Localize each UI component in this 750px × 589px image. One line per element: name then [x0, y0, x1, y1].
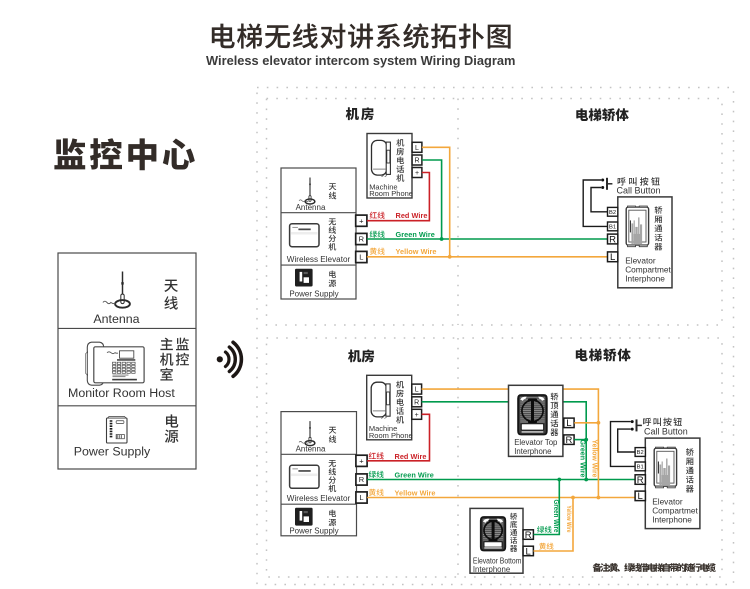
- svg-text:Interphone: Interphone: [473, 565, 510, 574]
- svg-text:L: L: [359, 493, 363, 502]
- svg-text:Call Button: Call Button: [644, 427, 688, 437]
- svg-text:Green Wire: Green Wire: [396, 230, 435, 239]
- svg-text:+: +: [415, 170, 419, 177]
- svg-text:L: L: [638, 491, 643, 502]
- svg-text:Call Button: Call Button: [617, 186, 661, 196]
- svg-text:Red Wire: Red Wire: [395, 452, 427, 461]
- svg-text:R: R: [359, 475, 365, 484]
- svg-text:R: R: [414, 399, 419, 406]
- svg-text:Power Supply: Power Supply: [289, 290, 338, 299]
- svg-text:Wireless Elevator: Wireless Elevator: [287, 255, 351, 264]
- svg-text:B1: B1: [609, 225, 616, 231]
- svg-text:B2: B2: [609, 210, 616, 216]
- svg-text:R: R: [637, 475, 644, 486]
- svg-text:Room Phone: Room Phone: [369, 189, 413, 198]
- svg-text:L: L: [359, 253, 363, 262]
- svg-text:R: R: [565, 435, 572, 446]
- svg-text:Yellow Wire: Yellow Wire: [396, 247, 437, 256]
- svg-text:Wireless Elevator: Wireless Elevator: [287, 494, 351, 503]
- svg-text:Interphone: Interphone: [514, 447, 551, 456]
- svg-text:Monitor Room Host: Monitor Room Host: [68, 386, 175, 400]
- svg-text:Green Wire: Green Wire: [552, 500, 559, 533]
- svg-text:R: R: [525, 530, 532, 541]
- svg-text:Room Phone: Room Phone: [369, 431, 413, 440]
- svg-text:Interphone: Interphone: [652, 515, 692, 525]
- svg-text:Yellow Wire: Yellow Wire: [591, 440, 598, 478]
- svg-text:+: +: [359, 457, 364, 466]
- svg-text:R: R: [414, 158, 419, 165]
- svg-text:Yellow Wire: Yellow Wire: [565, 506, 572, 533]
- svg-text:Antenna: Antenna: [296, 445, 326, 454]
- svg-text:L: L: [610, 252, 615, 263]
- svg-text:L: L: [526, 546, 531, 557]
- svg-text:R: R: [609, 234, 616, 245]
- svg-text:Red Wire: Red Wire: [396, 211, 428, 220]
- svg-text:Antenna: Antenna: [93, 312, 139, 326]
- svg-text:L: L: [415, 387, 419, 394]
- svg-text:B1: B1: [637, 465, 644, 471]
- svg-text:Power Supply: Power Supply: [289, 526, 338, 535]
- svg-text:Power Supply: Power Supply: [74, 444, 151, 458]
- svg-text:R: R: [359, 235, 365, 244]
- svg-text:+: +: [359, 216, 364, 225]
- svg-text:+: +: [415, 412, 419, 419]
- svg-text:L: L: [415, 145, 419, 152]
- svg-text:L: L: [566, 418, 571, 429]
- svg-text:B2: B2: [637, 450, 644, 456]
- svg-text:Green Wire: Green Wire: [395, 470, 434, 479]
- svg-text:Antenna: Antenna: [296, 203, 326, 212]
- svg-text:Green Wire: Green Wire: [578, 440, 585, 478]
- svg-text:Interphone: Interphone: [625, 274, 665, 284]
- svg-text:Yellow Wire: Yellow Wire: [395, 488, 436, 497]
- svg-text:Wireless elevator intercom sys: Wireless elevator intercom system Wiring…: [206, 54, 515, 68]
